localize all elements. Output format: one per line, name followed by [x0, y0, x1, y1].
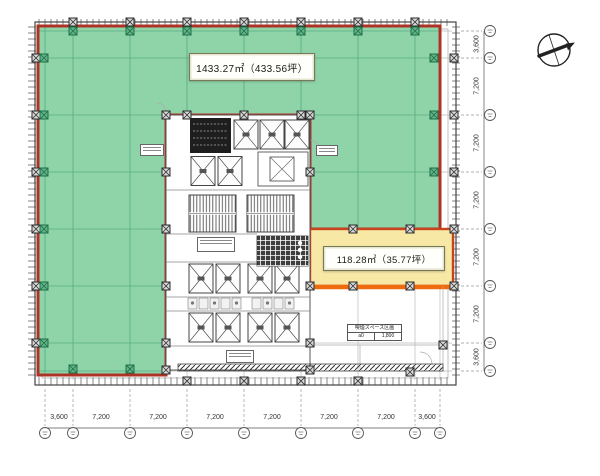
floor-plan-page: 1433.27㎡（433.56坪） 118.28㎡（35.77坪） 喫煙スペース… [0, 0, 600, 476]
dim-right-4: 7,200 [474, 248, 481, 266]
dim-right-3: 7,200 [474, 191, 481, 209]
dim-right-5: 7,200 [474, 305, 481, 323]
micro-label-box [316, 145, 338, 156]
micro-label-box [197, 237, 235, 252]
smoking-space-cell-b: 1,800 [374, 333, 401, 340]
micro-label-box [226, 350, 254, 363]
area-label-main: 1433.27㎡（433.56坪） [189, 53, 315, 81]
dim-bottom-1: 7,200 [92, 414, 110, 421]
area-label-sub: 118.28㎡（35.77坪） [323, 246, 445, 271]
dim-right-2: 7,200 [474, 134, 481, 152]
smoking-space-cell-a: a0 [348, 333, 374, 340]
dim-bottom-0: 3,600 [50, 414, 68, 421]
dim-bottom-4: 7,200 [263, 414, 281, 421]
dim-bottom-5: 7,200 [320, 414, 338, 421]
toilet-stalls [188, 298, 294, 309]
shaft-dark-block [190, 118, 231, 153]
micro-label-box [140, 144, 164, 156]
smoking-space-title: 喫煙スペース区画 [348, 325, 401, 332]
dim-bottom-7: 3,600 [418, 414, 436, 421]
machine-room [257, 236, 308, 266]
dim-right-0: 3,600 [474, 35, 481, 53]
dim-right-1: 7,200 [474, 77, 481, 95]
smoking-space-note: 喫煙スペース区画 a0 1,800 [347, 324, 402, 341]
north-arrow-icon [538, 34, 575, 66]
dim-bottom-6: 7,200 [377, 414, 395, 421]
dim-bottom-3: 7,200 [206, 414, 224, 421]
dim-right-6: 3,600 [474, 348, 481, 366]
dim-bottom-2: 7,200 [149, 414, 167, 421]
